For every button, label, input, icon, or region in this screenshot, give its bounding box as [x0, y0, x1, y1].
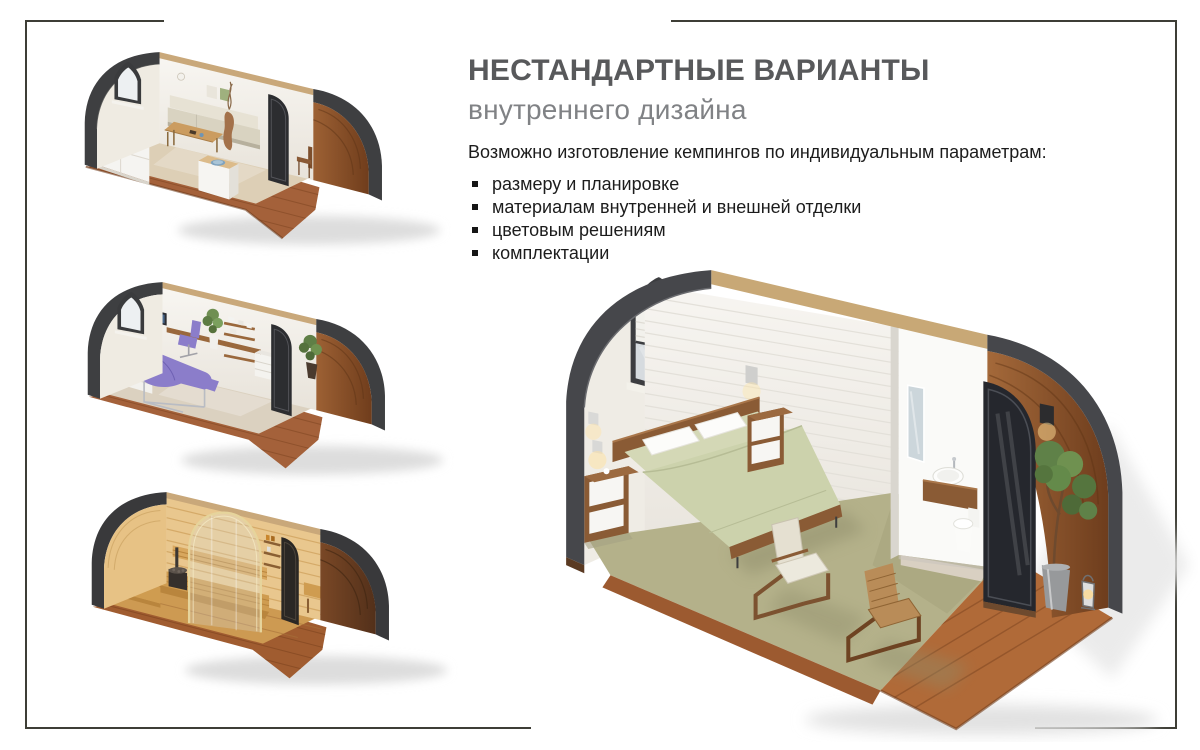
pod-massage-illustration	[58, 278, 468, 493]
square-bullet-icon	[472, 204, 478, 210]
pod-bedroom-illustration	[548, 262, 1198, 742]
body-text: Возможно изготовление кемпингов по индив…	[468, 141, 1108, 265]
bullet-item: материалам внутренней и внешней отделки	[468, 196, 1108, 218]
page-title: НЕСТАНДАРТНЫЕ ВАРИАНТЫ	[468, 54, 930, 88]
frame-left-line	[25, 20, 27, 729]
pod-lounge-image	[55, 48, 465, 263]
bullet-label: цветовым решениям	[492, 219, 666, 241]
bullet-list: размеру и планировке материалам внутренн…	[468, 173, 1108, 264]
pod-lounge-illustration	[55, 48, 465, 263]
page-subtitle: внутреннего дизайна	[468, 94, 930, 126]
header: НЕСТАНДАРТНЫЕ ВАРИАНТЫ внутреннего дизай…	[468, 54, 930, 126]
frame-top-right-segment	[671, 20, 1177, 22]
pod-massage-image	[58, 278, 468, 493]
pod-bedroom-image	[548, 262, 1198, 742]
frame-top-left-segment	[25, 20, 164, 22]
slide: НЕСТАНДАРТНЫЕ ВАРИАНТЫ внутреннего дизай…	[0, 0, 1200, 750]
bullet-item: цветовым решениям	[468, 219, 1108, 241]
square-bullet-icon	[472, 181, 478, 187]
square-bullet-icon	[472, 250, 478, 256]
bullet-label: комплектации	[492, 242, 609, 264]
bullet-label: размеру и планировке	[492, 173, 679, 195]
frame-bottom-left-segment	[25, 727, 531, 729]
intro-text: Возможно изготовление кемпингов по индив…	[468, 141, 1108, 164]
bullet-item: размеру и планировке	[468, 173, 1108, 195]
pod-sauna-image	[62, 488, 472, 703]
pod-sauna-illustration	[62, 488, 472, 703]
square-bullet-icon	[472, 227, 478, 233]
bullet-item: комплектации	[468, 242, 1108, 264]
bullet-label: материалам внутренней и внешней отделки	[492, 196, 861, 218]
